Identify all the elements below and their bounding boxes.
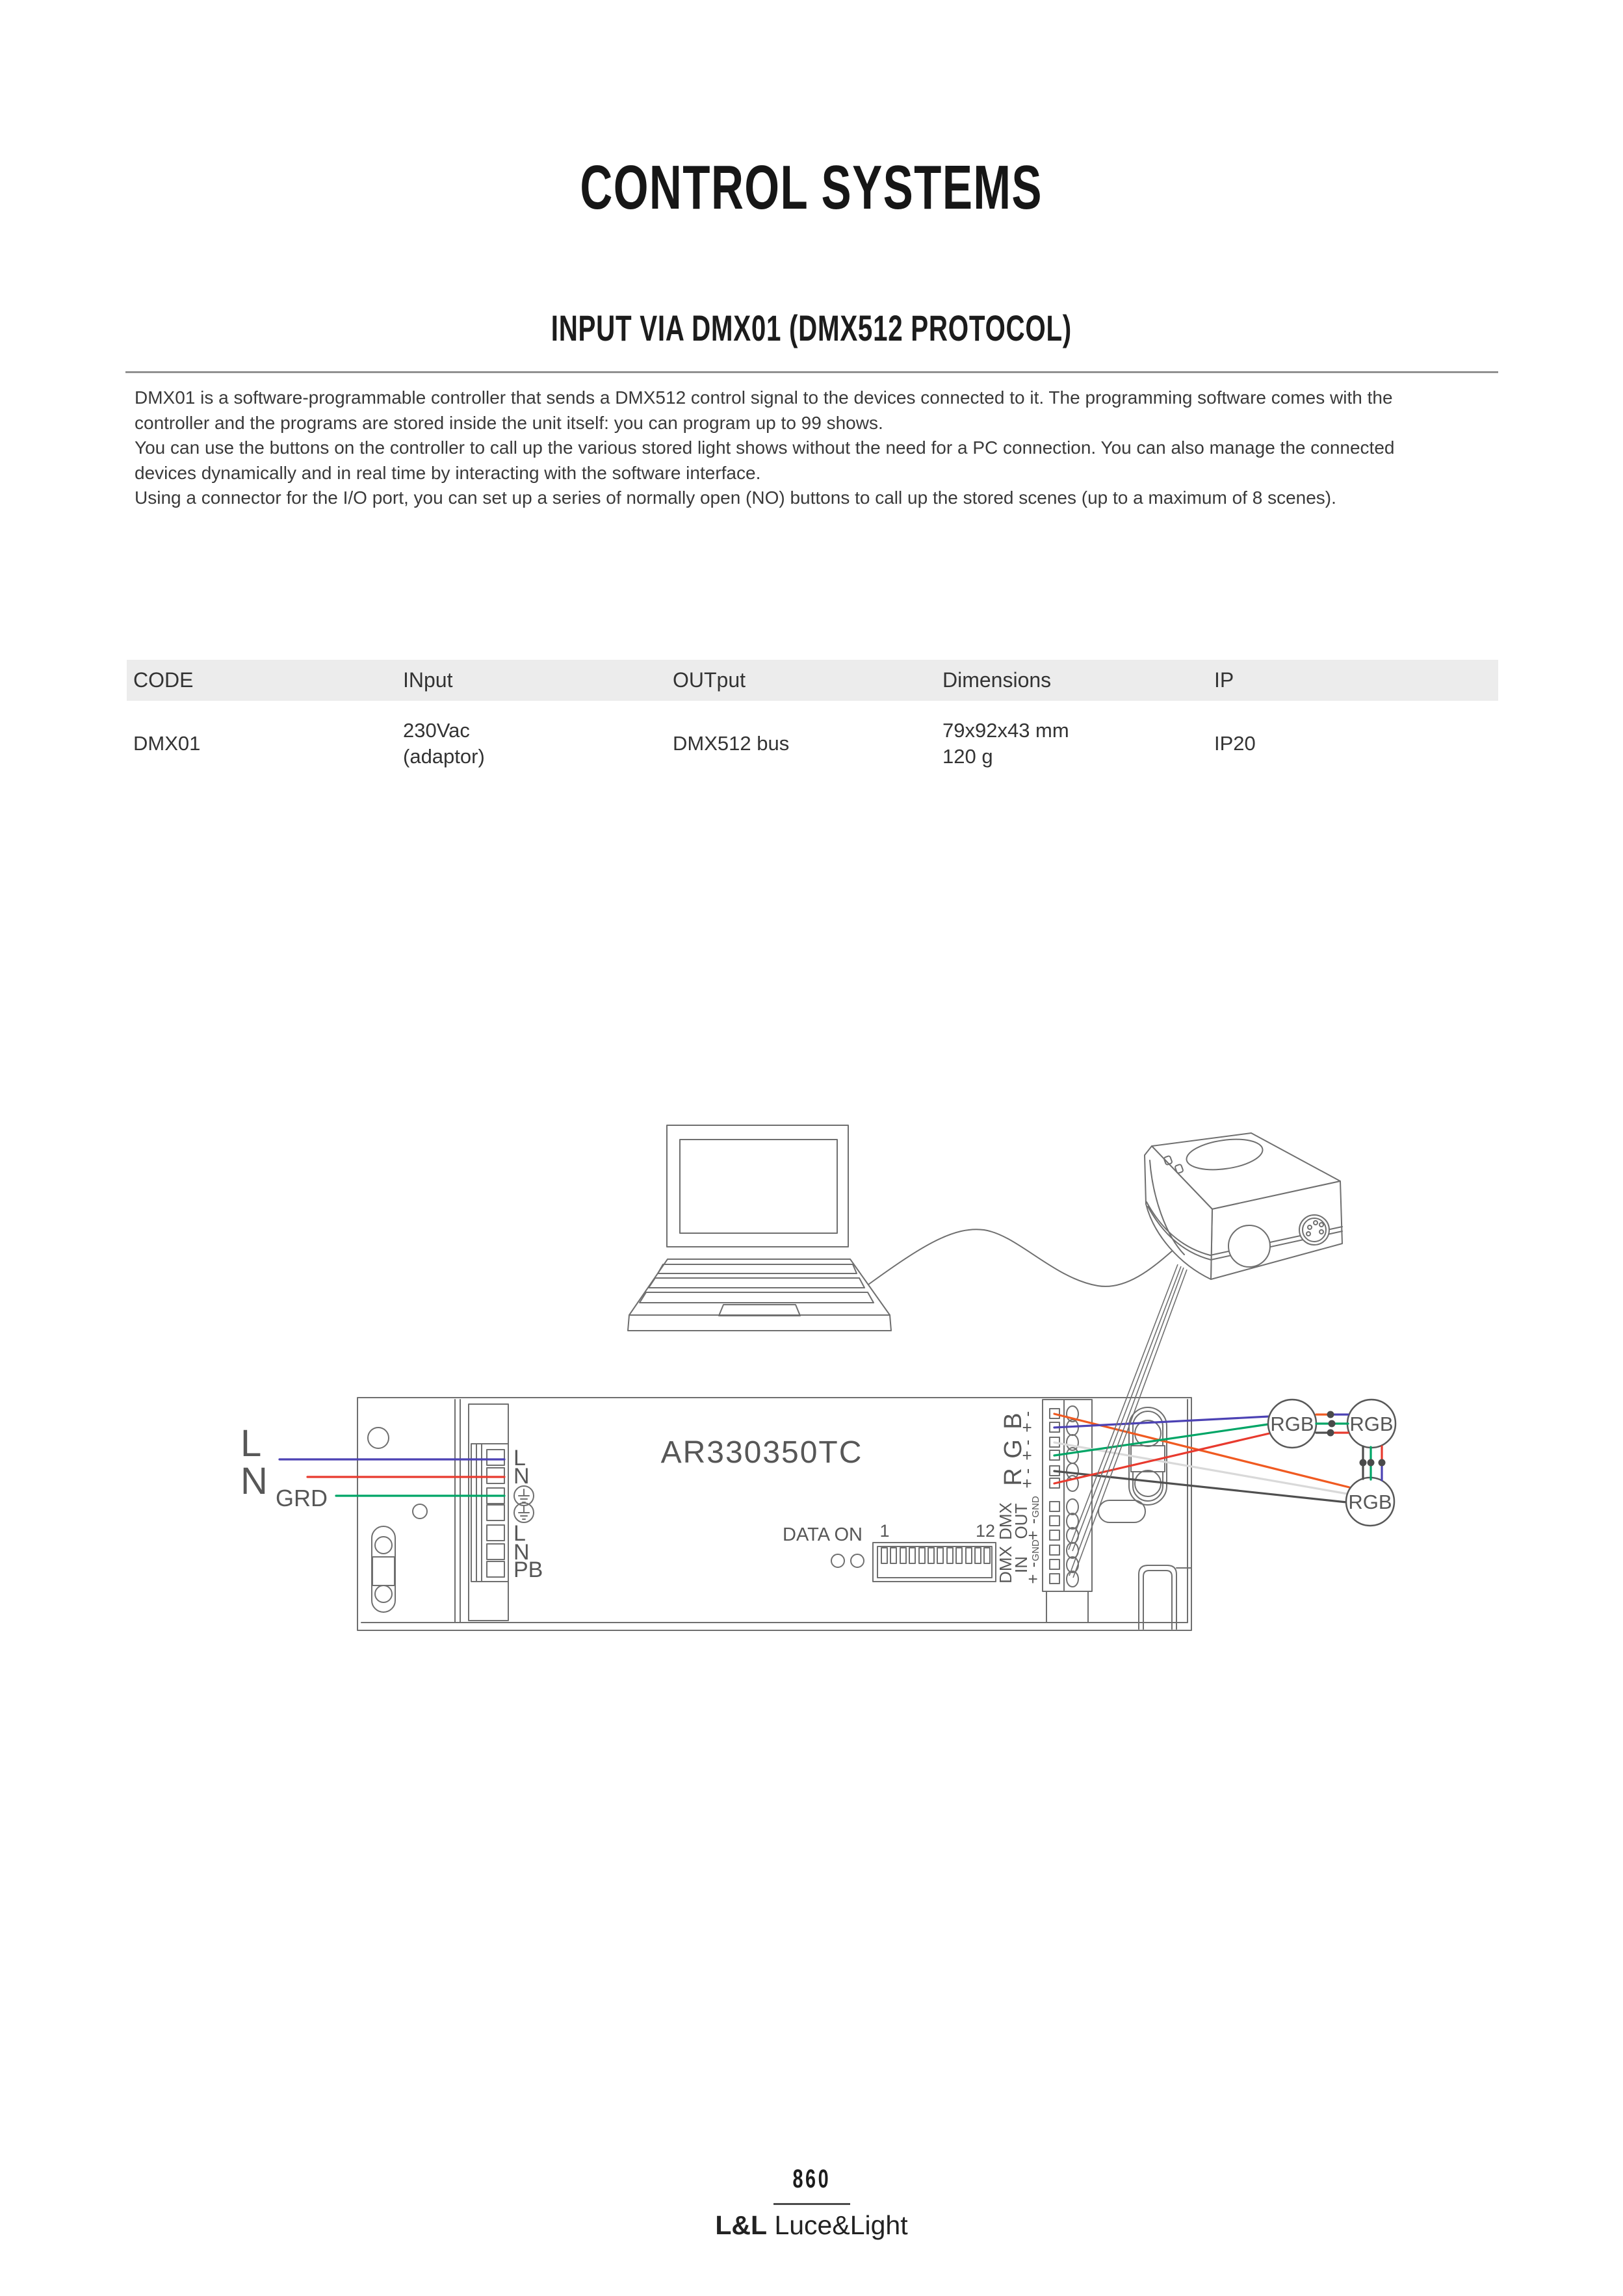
laptop-illustration [628,1125,891,1331]
catalog-page: CONTROL SYSTEMS INPUT VIA DMX01 (DMX512 … [0,0,1623,2296]
col-header-output: OUTput [673,660,746,701]
description-line: devices dynamically and in real time by … [135,461,1394,486]
page-title: CONTROL SYSTEMS [0,152,1623,224]
mains-input: L N GRD [240,1422,504,1511]
data-led [831,1554,844,1567]
spec-table-header: CODE INput OUTput Dimensions IP [127,660,1498,701]
cell-output: DMX512 bus [673,718,789,757]
footer-divider [773,2203,850,2205]
cell-dim-line2: 120 g [942,744,1069,770]
status-and-dip: DATA ON 1 12 [783,1521,996,1582]
col-header-input: INput [403,660,452,701]
rgb-fixtures: RGB RGB RGB [1268,1400,1396,1526]
col-header-dimensions: Dimensions [942,660,1051,701]
page-number-text: 860 [792,2165,831,2194]
data-on-label: DATA ON [783,1524,863,1545]
dip-first-label: 1 [879,1521,889,1541]
rgb-fixture-2-label: RGB [1349,1413,1393,1435]
brand-logo: L&L Luce&Light [0,2210,1623,2241]
page-number: 860 [0,2165,1623,2194]
mains-neutral-label: N [240,1460,268,1502]
minus-sign: - [1023,1562,1043,1568]
minus-sign: - [1017,1411,1037,1417]
description-line: You can use the buttons on the controlle… [135,436,1394,461]
minus-sign: - [1017,1440,1037,1446]
page-title-text: CONTROL SYSTEMS [580,152,1043,224]
plus-sign: + [1017,1450,1037,1460]
minus-sign: - [1017,1468,1037,1474]
gnd-label: GND [1030,1539,1041,1561]
plus-sign: + [1017,1422,1037,1432]
dip-last-label: 12 [976,1521,995,1541]
cell-dim-line1: 79x92x43 mm [942,718,1069,744]
driver-model-label: AR330350TC [661,1435,863,1470]
cell-input-line1: 230Vac [403,718,485,744]
col-header-ip: IP [1214,660,1234,701]
cell-ip: IP20 [1214,718,1256,757]
mains-ground-label: GRD [276,1485,328,1511]
section-divider [125,371,1498,373]
cell-input: 230Vac (adaptor) [403,718,485,770]
junction-dot [1379,1459,1386,1467]
junction-dot [1360,1459,1367,1467]
plus-sign: + [1023,1530,1043,1540]
din-connector [1299,1215,1329,1245]
mains-live-label: L [240,1422,261,1465]
cell-dimensions: 79x92x43 mm 120 g [942,718,1069,770]
plus-sign: + [1023,1574,1043,1584]
junction-dot [1368,1459,1375,1467]
wiring-diagram: L N L N PB [0,1040,1623,1723]
junction-dot [1327,1429,1334,1437]
junction-dot [1327,1411,1334,1418]
on-led [851,1554,864,1567]
mounting-notch [1139,1565,1191,1629]
junction-dot [1329,1420,1336,1428]
section-title: INPUT VIA DMX01 (DMX512 PROTOCOL) [0,307,1623,349]
earth-symbol [514,1503,534,1522]
io-port [1228,1225,1270,1267]
left-mounting-bracket [368,1428,427,1612]
usb-cable [868,1229,1174,1286]
description-line: DMX01 is a software-programmable control… [135,385,1394,411]
rgb-fixture-1-label: RGB [1270,1413,1314,1435]
description-paragraph: DMX01 is a software-programmable control… [135,385,1394,511]
description-line: controller and the programs are stored i… [135,411,1394,436]
dip-switches [881,1548,990,1563]
output-terminal-block: B - + G - + R - + DMX OUT GND - + DMX IN… [996,1400,1092,1623]
terminal-label-n: N [513,1464,530,1489]
brand-logo-rest: Luce&Light [767,2210,908,2240]
cell-code: DMX01 [133,718,200,757]
dmx01-controller [1145,1133,1342,1279]
gnd-label: GND [1030,1496,1041,1518]
cell-input-line2: (adaptor) [403,744,485,770]
brand-logo-bold: L&L [715,2210,767,2240]
terminal-label-pb: PB [513,1558,543,1582]
minus-sign: - [1023,1519,1043,1524]
power-terminal-block: L N L N PB [469,1404,543,1621]
driver-box: L N L N PB [357,1398,1191,1630]
plus-sign: + [1017,1478,1037,1488]
description-line: Using a connector for the I/O port, you … [135,486,1394,511]
section-title-text: INPUT VIA DMX01 (DMX512 PROTOCOL) [551,307,1072,349]
col-header-code: CODE [133,660,193,701]
rgb-fixture-3-label: RGB [1348,1491,1392,1513]
